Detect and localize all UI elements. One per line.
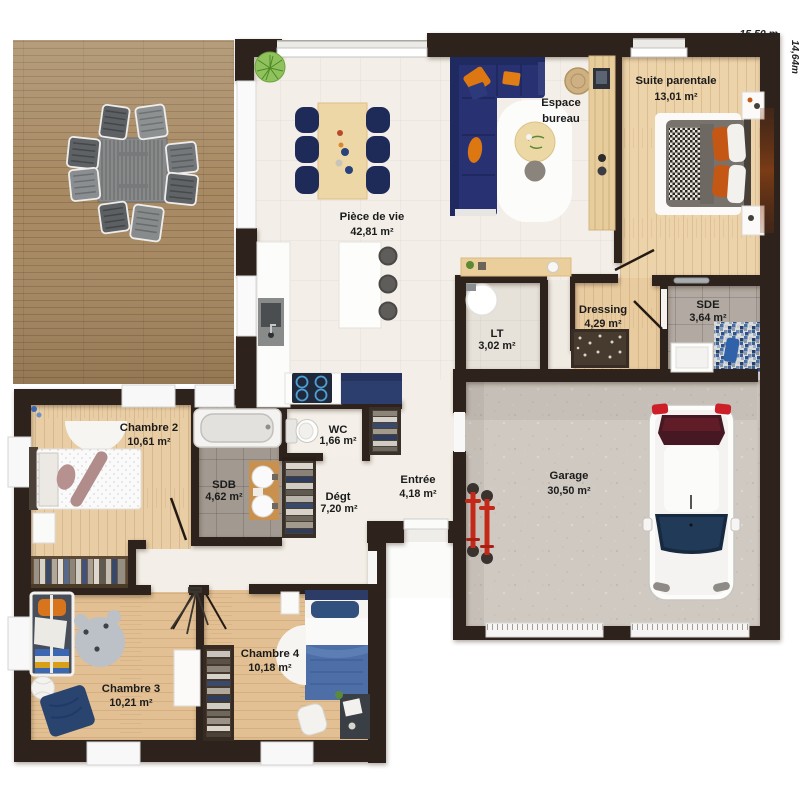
svg-text:10,61 m²: 10,61 m² xyxy=(127,436,171,448)
svg-text:SDB: SDB xyxy=(212,479,236,491)
svg-text:Chambre 2: Chambre 2 xyxy=(120,422,178,434)
svg-text:Espace: Espace xyxy=(541,97,581,109)
svg-text:30,50 m²: 30,50 m² xyxy=(547,485,591,497)
svg-text:1,66 m²: 1,66 m² xyxy=(319,435,357,447)
svg-text:3,02 m²: 3,02 m² xyxy=(478,340,516,352)
svg-text:Chambre 4: Chambre 4 xyxy=(241,648,300,660)
svg-text:3,64 m²: 3,64 m² xyxy=(689,312,727,324)
svg-text:Entrée: Entrée xyxy=(400,474,435,486)
svg-text:7,20 m²: 7,20 m² xyxy=(320,503,358,515)
svg-text:14,64m: 14,64m xyxy=(789,40,800,74)
svg-text:Suite parentale: Suite parentale xyxy=(636,75,717,87)
svg-text:bureau: bureau xyxy=(542,113,580,125)
svg-text:Pièce de vie: Pièce de vie xyxy=(340,211,405,223)
svg-text:4,62 m²: 4,62 m² xyxy=(205,491,243,503)
svg-text:Dressing: Dressing xyxy=(579,304,627,316)
svg-text:42,81 m²: 42,81 m² xyxy=(350,226,394,238)
svg-text:4,29 m²: 4,29 m² xyxy=(584,318,622,330)
svg-text:15,50 m: 15,50 m xyxy=(739,28,778,40)
svg-text:Chambre 3: Chambre 3 xyxy=(102,683,160,695)
svg-text:Garage: Garage xyxy=(550,470,589,482)
svg-text:Dégt: Dégt xyxy=(325,491,350,503)
svg-text:LT: LT xyxy=(491,328,504,340)
svg-text:13,01 m²: 13,01 m² xyxy=(654,91,698,103)
svg-text:4,18 m²: 4,18 m² xyxy=(399,488,437,500)
svg-text:10,18 m²: 10,18 m² xyxy=(248,662,292,674)
svg-text:10,21 m²: 10,21 m² xyxy=(109,697,153,709)
svg-text:SDE: SDE xyxy=(696,299,720,311)
